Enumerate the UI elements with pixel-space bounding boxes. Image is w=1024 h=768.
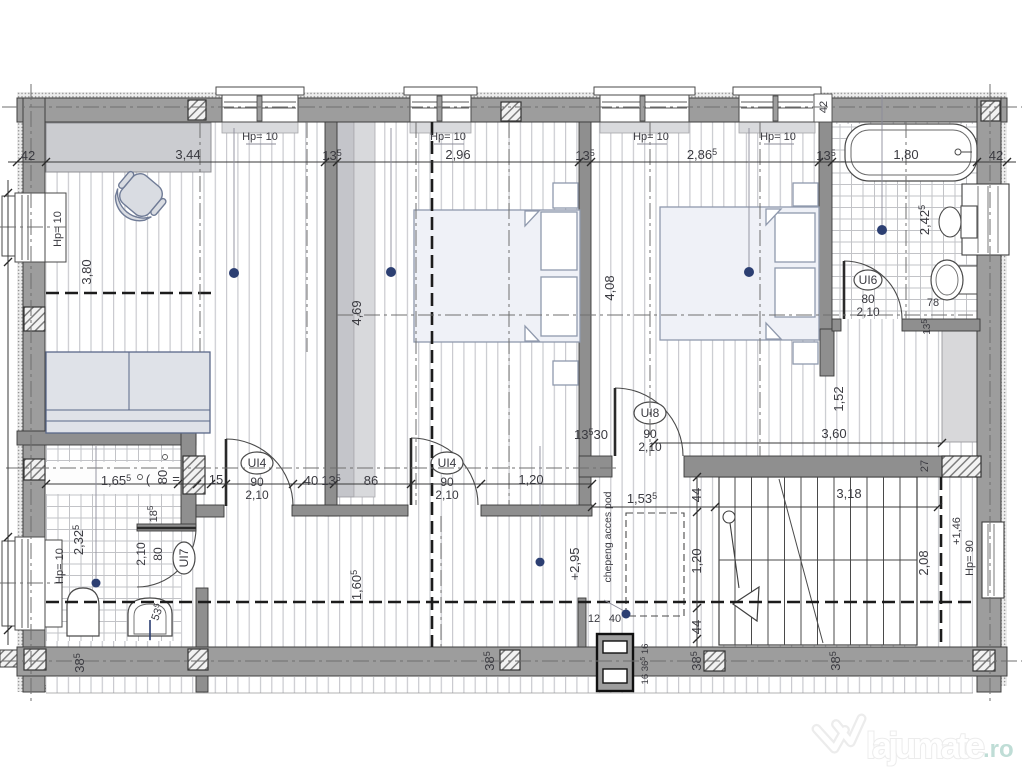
svg-text:42: 42 [818,101,830,113]
svg-text:2,10: 2,10 [245,488,269,502]
svg-text:2,10: 2,10 [856,305,880,319]
svg-text:27: 27 [919,460,931,472]
svg-text:78: 78 [927,297,939,309]
svg-text:3,80: 3,80 [79,259,94,284]
svg-text:Hp= 10: Hp= 10 [430,131,466,143]
svg-text:16 365 16: 16 365 16 [640,644,651,685]
svg-text:80: 80 [155,470,170,484]
svg-text:Hp= 10: Hp= 10 [760,131,796,143]
svg-text:chepeng acces pod: chepeng acces pod [602,491,614,582]
svg-text:40: 40 [609,613,621,625]
svg-text:Hp= 90: Hp= 90 [964,540,976,576]
svg-text:80: 80 [861,292,875,306]
svg-text:.ro: .ro [983,736,1014,763]
svg-text:4,69: 4,69 [349,300,364,325]
svg-text:2,96: 2,96 [445,147,470,162]
svg-text:+1,46: +1,46 [951,517,963,545]
svg-text:86: 86 [364,473,378,488]
svg-text:3,60: 3,60 [821,426,846,441]
svg-text:=: = [172,471,180,486]
svg-text:12: 12 [588,613,600,625]
svg-text:2,08: 2,08 [916,550,931,575]
svg-text:lajumate: lajumate [866,725,984,766]
svg-text:4,08: 4,08 [602,275,617,300]
svg-text:40: 40 [304,473,318,488]
svg-text:UI6: UI6 [859,273,878,287]
svg-text:15: 15 [209,472,223,487]
svg-text:2,10: 2,10 [134,542,148,566]
svg-text:44: 44 [689,620,704,634]
svg-text:Hp= 10: Hp= 10 [54,548,66,584]
svg-text:90: 90 [440,475,454,489]
svg-text:Hp= 10: Hp= 10 [242,131,278,143]
svg-text:2,10: 2,10 [435,488,459,502]
svg-text:+2,95: +2,95 [567,548,582,581]
svg-text:80: 80 [151,547,165,561]
svg-text:1,52: 1,52 [831,386,846,411]
svg-text:3,18: 3,18 [836,486,861,501]
svg-text:Hp= 10: Hp= 10 [633,131,669,143]
svg-text:UI7: UI7 [177,548,191,567]
svg-text:3,44: 3,44 [175,147,200,162]
svg-text:(: ( [146,472,151,487]
svg-text:90: 90 [250,475,264,489]
svg-text:1,20: 1,20 [518,472,543,487]
svg-text:42: 42 [21,148,35,163]
svg-text:1,20: 1,20 [689,548,704,573]
svg-text:Hp= 10: Hp= 10 [52,211,64,247]
svg-text:1,80: 1,80 [893,147,918,162]
svg-text:42: 42 [989,148,1003,163]
svg-text:44: 44 [689,488,704,502]
